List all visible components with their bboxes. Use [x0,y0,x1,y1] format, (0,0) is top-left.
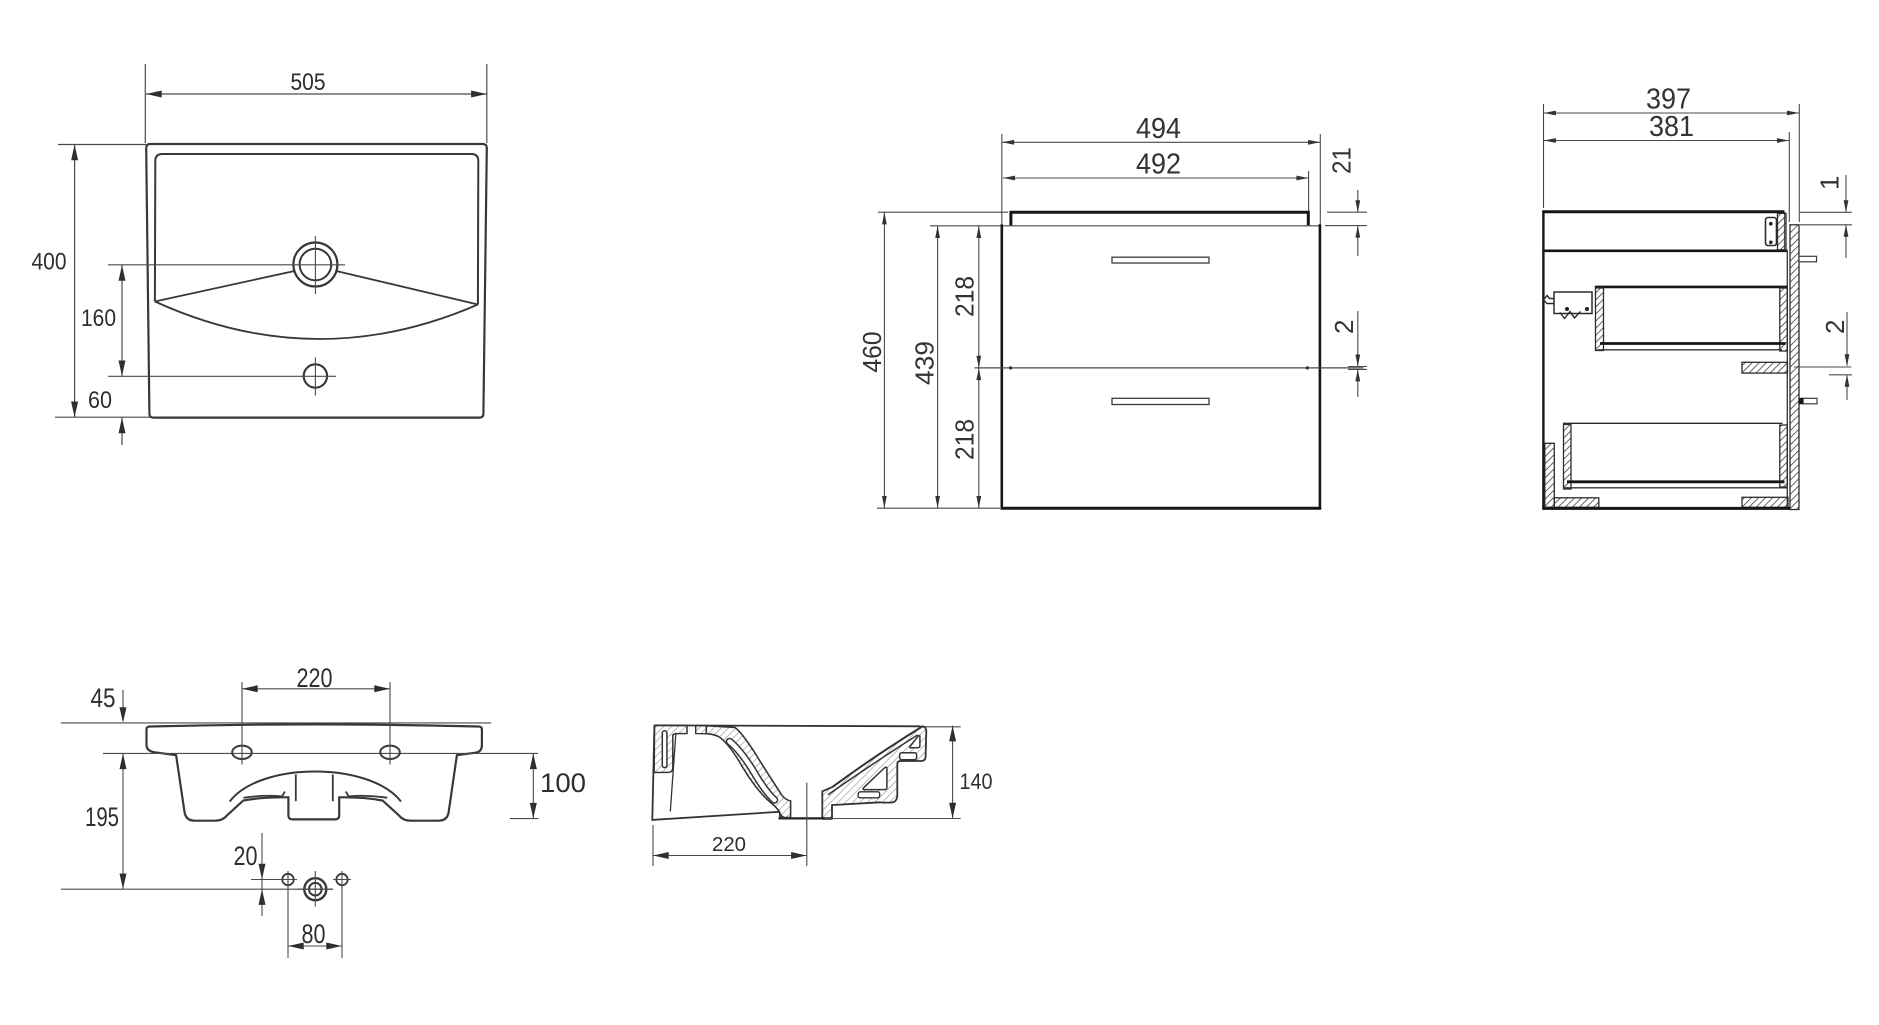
svg-text:20: 20 [234,841,258,871]
svg-text:21: 21 [1327,147,1357,174]
svg-text:2: 2 [1329,320,1359,334]
svg-text:381: 381 [1649,111,1694,143]
svg-text:45: 45 [91,683,116,713]
svg-text:439: 439 [910,341,940,385]
svg-text:505: 505 [291,69,326,96]
svg-text:494: 494 [1136,113,1181,145]
svg-text:460: 460 [857,332,887,373]
svg-text:80: 80 [302,919,326,949]
svg-text:195: 195 [85,802,119,832]
svg-text:140: 140 [960,769,993,794]
svg-text:492: 492 [1136,149,1181,181]
svg-text:220: 220 [297,663,333,693]
svg-text:2: 2 [1820,320,1850,334]
svg-text:400: 400 [32,249,67,276]
svg-text:60: 60 [88,387,112,414]
svg-text:1: 1 [1815,176,1845,190]
svg-text:218: 218 [950,276,980,317]
svg-text:160: 160 [81,305,116,332]
svg-text:218: 218 [950,419,980,460]
svg-text:100: 100 [540,768,586,798]
svg-text:220: 220 [712,833,746,856]
